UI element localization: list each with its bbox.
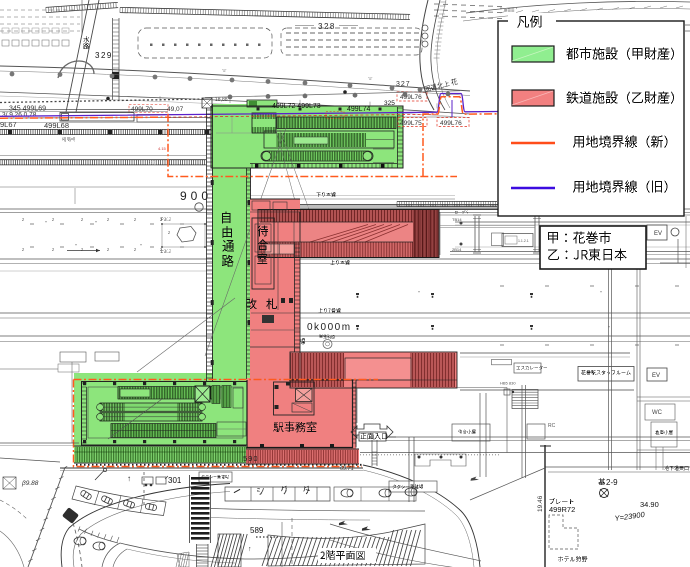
svg-text:589: 589 (250, 526, 264, 535)
svg-text:325: 325 (384, 100, 395, 107)
svg-text:499L76: 499L76 (440, 120, 462, 127)
svg-text:18,88: 18,88 (215, 97, 228, 103)
svg-text:499R72: 499R72 (549, 505, 575, 514)
svg-text:69.71: 69.71 (340, 466, 354, 472)
svg-text:1.1.2.1: 1.1.2.1 (518, 239, 529, 243)
svg-text:4.15: 4.15 (158, 146, 167, 151)
svg-text:TB14: TB14 (452, 217, 462, 222)
svg-text:499L75: 499L75 (400, 120, 422, 127)
svg-text:′≡′: ′≡′ (222, 68, 226, 73)
svg-text:RC: RC (548, 423, 556, 429)
svg-text:0k000m: 0k000m (307, 322, 352, 333)
svg-text:EV: EV (652, 373, 660, 379)
svg-text:499L74: 499L74 (347, 106, 370, 113)
svg-text:↑: ↑ (127, 474, 131, 483)
svg-text:329: 329 (95, 51, 113, 60)
svg-text:301: 301 (168, 476, 182, 485)
svg-text:2B14: 2B14 (452, 247, 462, 252)
svg-text:′′: ′′ (45, 221, 47, 227)
svg-text:19.46: 19.46 (537, 495, 544, 512)
svg-text:(22): (22) (148, 160, 157, 165)
svg-text:328: 328 (318, 22, 336, 31)
svg-text:49,07: 49,07 (167, 106, 184, 113)
svg-text:590: 590 (243, 454, 259, 463)
svg-text:↑: ↑ (248, 546, 252, 553)
svg-text:9L67: 9L67 (0, 120, 17, 129)
svg-text:2-9: 2-9 (606, 478, 618, 487)
svg-text:′′: ′′ (75, 244, 77, 250)
svg-text:′′: ′′ (140, 244, 142, 250)
svg-text:′′: ′′ (95, 221, 97, 227)
svg-text:WC: WC (652, 410, 663, 416)
svg-text:′′: ′′ (418, 291, 420, 297)
svg-text:34.90: 34.90 (640, 500, 659, 509)
svg-text:′≡′: ′≡′ (368, 76, 372, 81)
svg-text:′′: ′′ (600, 291, 602, 297)
svg-text:β9.88: β9.88 (21, 480, 39, 487)
svg-text:HB5 830: HB5 830 (500, 381, 516, 386)
svg-text:499L72 499L73: 499L72 499L73 (272, 103, 321, 110)
svg-text:EV: EV (654, 231, 662, 237)
svg-text:327: 327 (396, 81, 411, 88)
